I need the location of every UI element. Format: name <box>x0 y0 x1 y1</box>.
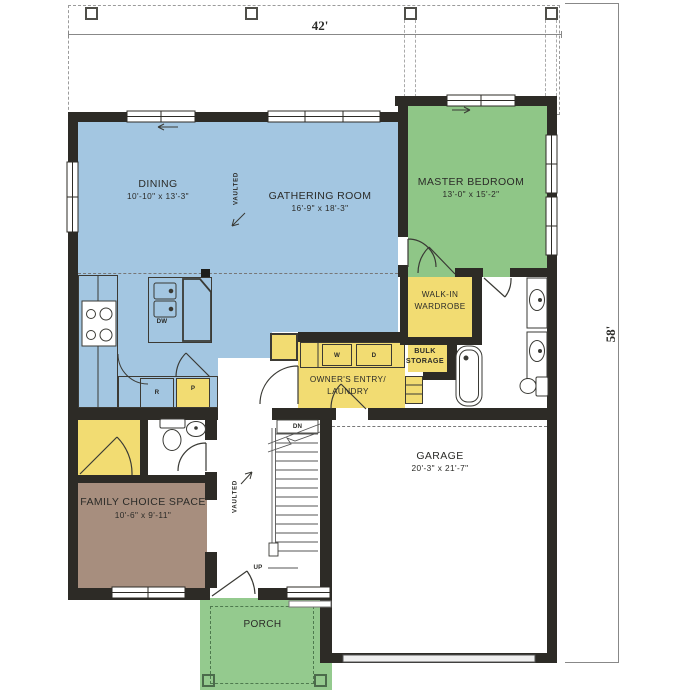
toilet-tank <box>160 419 185 428</box>
toilet-bowl <box>520 379 536 394</box>
garage-size: 20'-3" x 21'-7" <box>365 464 515 474</box>
dining-label: DINING <box>98 178 218 190</box>
family-choice-label: FAMILY CHOICE SPACE <box>78 496 208 508</box>
gathering-room-size: 16'-9" x 18'-3" <box>245 204 395 214</box>
toilet-tank <box>536 377 548 396</box>
toilet-bowl <box>163 430 181 451</box>
entry-step <box>289 601 331 607</box>
owners-entry-label-2: LAUNDRY <box>288 387 408 396</box>
master-bath-door <box>484 278 511 297</box>
vaulted-arrow <box>241 472 252 484</box>
wardrobe-door <box>418 247 455 274</box>
staircase <box>268 420 320 568</box>
gathering-room-label: GATHERING ROOM <box>245 190 395 202</box>
stairs-down-label: DN <box>277 423 318 430</box>
bulk-storage-label-1: BULK <box>402 347 448 355</box>
powder-fixtures <box>160 419 206 451</box>
window-arrow <box>158 124 178 130</box>
stairs-up-label: UP <box>248 564 268 571</box>
master-bedroom-door <box>408 239 436 267</box>
owners-entry-label-1: OWNER'S ENTRY/ <box>288 375 408 384</box>
island-bar-top <box>183 279 211 341</box>
plan-linework <box>0 0 700 700</box>
vaulted-label: VAULTED <box>233 466 240 526</box>
master-bedroom-label: MASTER BEDROOM <box>396 176 546 188</box>
corner-counter-arc <box>118 354 148 384</box>
window <box>67 95 557 598</box>
powder-door <box>178 443 206 471</box>
window-arrow <box>452 107 470 113</box>
bulk-storage-label-2: STORAGE <box>402 357 448 365</box>
wardrobe-label-2: WARDROBE <box>408 302 472 311</box>
vanity <box>527 332 547 382</box>
pantry-door <box>176 353 210 377</box>
garage-label: GARAGE <box>365 450 515 462</box>
front-door <box>212 571 255 596</box>
tub-drain <box>464 356 468 360</box>
garage-door <box>343 655 535 662</box>
porch-label: PORCH <box>205 619 320 631</box>
master-bedroom-size: 13'-0" x 15'-2" <box>396 190 546 200</box>
vaulted-label: VAULTED <box>234 158 241 218</box>
wardrobe-label-1: WALK-IN <box>408 290 472 299</box>
family-choice-size: 10'-6" x 9'-11" <box>78 511 208 521</box>
family-closet-door <box>80 437 132 475</box>
floor-plan: 42' 58' R P DW W D <box>0 0 700 700</box>
owners-entry-door <box>260 366 298 404</box>
dining-size: 10'-10" x 13'-3" <box>98 192 218 202</box>
